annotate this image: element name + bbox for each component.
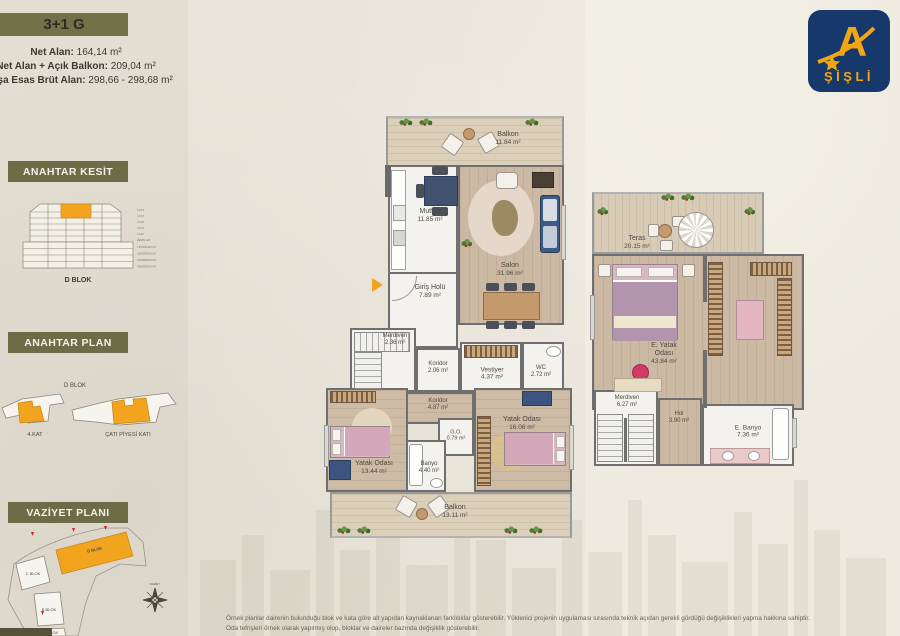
room-area: 0.79 m² [447, 436, 466, 442]
stat-label: Satışa Esas Brüt Alan: [0, 75, 86, 86]
wall-partition [703, 256, 707, 302]
entrance-pin-icon [31, 532, 34, 536]
plant-icon [356, 526, 371, 535]
room-area: 4.37 m² [480, 374, 503, 381]
terrace-table-icon [658, 224, 672, 238]
room-label-banyo: Banyo 4.40 m² [419, 461, 439, 475]
floor-label: ZEMİN KAT [137, 237, 151, 242]
room-label-vestiyer: Vestiyer 4.37 m² [480, 367, 503, 382]
floor-label: 1.KAT [137, 232, 144, 236]
nightstand-icon [682, 264, 695, 277]
entrance-pin-icon [72, 528, 75, 532]
entrance-arrow-icon [372, 278, 383, 292]
room-hol [658, 398, 702, 466]
balcony-table-icon [463, 128, 475, 140]
room-name: WC [531, 365, 551, 372]
floor-label: 2.KAT [137, 226, 144, 230]
room-label-balcony-top: Balkon 11.84 m² [495, 131, 520, 147]
rug-accent-icon [492, 200, 518, 236]
room-area: 4.87 m² [428, 405, 448, 412]
room-name: Koridor [428, 361, 448, 368]
svg-text:KUZEY: KUZEY [150, 582, 160, 586]
room-name: Salon [497, 262, 523, 270]
desk-icon [522, 391, 552, 406]
stat-net-alan-balkon: Net Alan + Açık Balkon: 209,04 m² [0, 61, 186, 72]
room-label-koridor-206: Koridor 2.06 m² [428, 361, 448, 375]
plant-icon [461, 238, 472, 249]
plant-icon [660, 193, 675, 202]
room-area: 2.06 m² [428, 368, 448, 375]
site-label-c: C BLOK [26, 571, 41, 576]
room-name: Balkon [442, 504, 467, 512]
room-name: Mutfak [417, 208, 442, 216]
logo-letter-a: A [837, 18, 867, 65]
stat-label: Net Alan: [30, 47, 74, 58]
chair-icon [416, 184, 424, 198]
bottom-accent-strip [0, 628, 52, 636]
room-label-koridor-487: Koridor 4.87 m² [428, 398, 448, 412]
room-label-balcony-bottom: Balkon 13.11 m² [442, 504, 467, 520]
sofa-cushion-icon [543, 199, 557, 221]
pillow-icon [616, 267, 642, 277]
window [792, 418, 797, 448]
room-name: Merdiven [615, 395, 640, 402]
console-icon [614, 378, 662, 392]
room-label-go: G.O. 0.79 m² [447, 430, 466, 443]
closet-icon [777, 278, 792, 356]
room-label-giris-holu: Giriş Holü 7.89 m² [412, 284, 448, 300]
room-area: 2.72 m² [531, 372, 551, 379]
sofa-cushion-icon [543, 226, 557, 248]
kesit-block-label: D BLOK [65, 277, 92, 284]
site-block-d [56, 532, 133, 574]
disclaimer: Örnek planlar dairenin bulunduğu blok ve… [226, 614, 866, 634]
closet-icon [750, 262, 792, 276]
floor-label: 4.KAT [137, 214, 144, 218]
desk-icon [329, 460, 351, 480]
sink-icon [393, 205, 406, 221]
room-area: 43.84 m² [644, 358, 684, 365]
wardrobe-icon [477, 416, 491, 486]
floor-label: 3.KAT [137, 220, 144, 224]
stat-value: 298,66 - 298,68 m² [86, 75, 173, 86]
stat-brut-alan: Satışa Esas Brüt Alan: 298,66 - 298,68 m… [0, 75, 186, 86]
pillow-icon [648, 267, 674, 277]
room-area: 31.96 m² [497, 270, 523, 277]
room-label-hol: Hol 3.90 m² [669, 411, 689, 425]
room-name: Giriş Holü [412, 284, 448, 292]
keyplan-floor-left: 4.KAT [27, 432, 43, 438]
stairs-icon [597, 414, 623, 462]
wardrobe-icon [464, 345, 518, 358]
disclaimer-line1: Örnek planlar dairenin bulunduğu blok ve… [226, 614, 866, 624]
unit-title: 3+1 G [0, 13, 128, 36]
terrace-chair-icon [660, 240, 673, 251]
section-header-vaziyet-plani: VAZİYET PLANI [8, 502, 128, 523]
duvet-icon [505, 433, 554, 464]
stat-net-alan: Net Alan: 164,14 m² [0, 47, 186, 58]
room-area: 11.84 m² [495, 139, 520, 146]
room-label-teras: Teras 20.15 m² [624, 235, 650, 251]
pillow-icon [556, 450, 565, 462]
plant-icon [680, 193, 695, 202]
balcony-table-icon [416, 508, 428, 520]
sink-icon [722, 451, 734, 461]
chair-icon [432, 166, 448, 175]
room-name: Balkon [495, 131, 520, 139]
plant-icon [744, 206, 755, 217]
window [569, 425, 574, 470]
room-area: 7.89 m² [412, 292, 448, 299]
room-area: 6.27 m² [615, 402, 640, 409]
stove-icon [393, 230, 406, 246]
sink-icon [748, 451, 760, 461]
room-area: 16.06 m² [503, 424, 541, 431]
room-name: Vestiyer [480, 367, 503, 374]
room-area: 4.40 m² [419, 468, 439, 475]
pillow-icon [332, 429, 341, 441]
room-area: 13.11 m² [442, 512, 467, 519]
floor-label: 1.BODRUM KAT [137, 245, 157, 249]
bed-throw-icon [614, 316, 676, 328]
room-area: 13.44 m² [355, 468, 393, 475]
stat-value: 209,04 m² [108, 61, 156, 72]
section-header-anahtar-kesit: ANAHTAR KESİT [8, 161, 128, 182]
room-label-e-yatak: E. Yatak Odası 43.84 m² [644, 342, 684, 366]
duvet-icon [613, 280, 677, 341]
kitchen-table-icon [424, 176, 458, 206]
highlighted-unit-section [61, 204, 91, 218]
room-label-merdiven-roof: Merdiven 6.27 m² [615, 395, 640, 409]
room-label-mutfak: Mutfak 11.85 m² [417, 208, 442, 224]
plant-icon [398, 118, 413, 127]
umbrella-icon [678, 212, 714, 248]
sink-icon [546, 346, 561, 357]
keyplan-block-label: D BLOK [64, 383, 86, 389]
plant-icon [597, 206, 608, 217]
stat-label: Net Alan + Açık Balkon: [0, 61, 108, 72]
room-name: E. Yatak Odası [644, 342, 684, 358]
room-name: Teras [624, 235, 650, 243]
room-label-wc: WC 2.72 m² [531, 365, 551, 379]
stat-value: 164,14 m² [74, 47, 122, 58]
room-area: 2.36 m² [383, 340, 408, 347]
bathtub-icon [772, 408, 789, 460]
floor-label: 5.KAT [137, 208, 144, 212]
room-area: 7.36 m² [735, 432, 761, 439]
section-header-anahtar-plan: ANAHTAR PLAN [8, 332, 128, 353]
disclaimer-line2: Oda tefrişleri örnek olarak yapılmış olu… [226, 624, 866, 634]
plant-icon [524, 118, 539, 127]
room-name: E. Banyo [735, 425, 761, 432]
building-section-diagram: 5.KAT 4.KAT 3.KAT 2.KAT 1.KAT ZEMİN KAT … [18, 196, 176, 292]
plant-icon [336, 526, 351, 535]
floor-label: 3.BODRUM KAT [137, 258, 157, 262]
room-area: 20.15 m² [624, 243, 650, 250]
wardrobe-icon [330, 391, 376, 403]
window [590, 295, 595, 340]
duvet-icon [344, 427, 390, 456]
plant-icon [503, 526, 518, 535]
closet-icon [708, 262, 723, 356]
room-name: Merdiven [383, 333, 408, 340]
site-plan-diagram: C BLOK D BLOK B BLOK A BLOK KUZEY [0, 524, 200, 636]
dressing-bench-icon [736, 300, 764, 340]
dining-table-icon [483, 292, 540, 320]
room-name: Yatak Odası [355, 460, 393, 468]
room-label-yatak-1606: Yatak Odası 16.06 m² [503, 416, 541, 432]
plant-icon [528, 526, 543, 535]
keyplan-floor-right: ÇATI PİYESİ KATI [105, 431, 151, 438]
pillow-icon [332, 443, 341, 455]
floor-label: 4.BODRUM KAT [137, 265, 157, 269]
room-label-merdiven-main: Merdiven 2.36 m² [383, 333, 408, 347]
area-stats: Net Alan: 164,14 m² Net Alan + Açık Balk… [0, 44, 186, 89]
floor-label: 2.BODRUM KAT [137, 252, 157, 256]
stairs-icon [354, 352, 382, 389]
armchair-icon [496, 172, 518, 189]
room-area: 11.85 m² [417, 216, 442, 223]
stairs-icon [628, 414, 654, 462]
sisli-logo: A ŞİŞLİ [808, 10, 890, 92]
plant-icon [418, 118, 433, 127]
compass-icon: KUZEY [143, 582, 167, 612]
logo-name: ŞİŞLİ [824, 69, 874, 84]
room-name: Yatak Odası [503, 416, 541, 424]
tv-unit-icon [532, 172, 554, 188]
window [561, 205, 566, 260]
nightstand-icon [598, 264, 611, 277]
site-label-b: B BLOK [42, 607, 57, 612]
room-area: 3.90 m² [669, 418, 689, 425]
stair-divider [624, 418, 627, 462]
pillow-icon [556, 436, 565, 448]
room-label-yatak-1344: Yatak Odası 13.44 m² [355, 460, 393, 476]
room-name: Banyo [419, 461, 439, 468]
vanity-counter-icon [710, 448, 770, 464]
room-name: Hol [669, 411, 689, 418]
room-name: Koridor [428, 398, 448, 405]
room-label-salon: Salon 31.96 m² [497, 262, 523, 278]
wall-partition [703, 350, 707, 408]
sink-icon [430, 478, 443, 488]
room-label-e-banyo: E. Banyo 7.36 m² [735, 425, 761, 440]
key-plan-diagram: D BLOK 4.KAT ÇATI PİYESİ KATI [0, 378, 192, 444]
